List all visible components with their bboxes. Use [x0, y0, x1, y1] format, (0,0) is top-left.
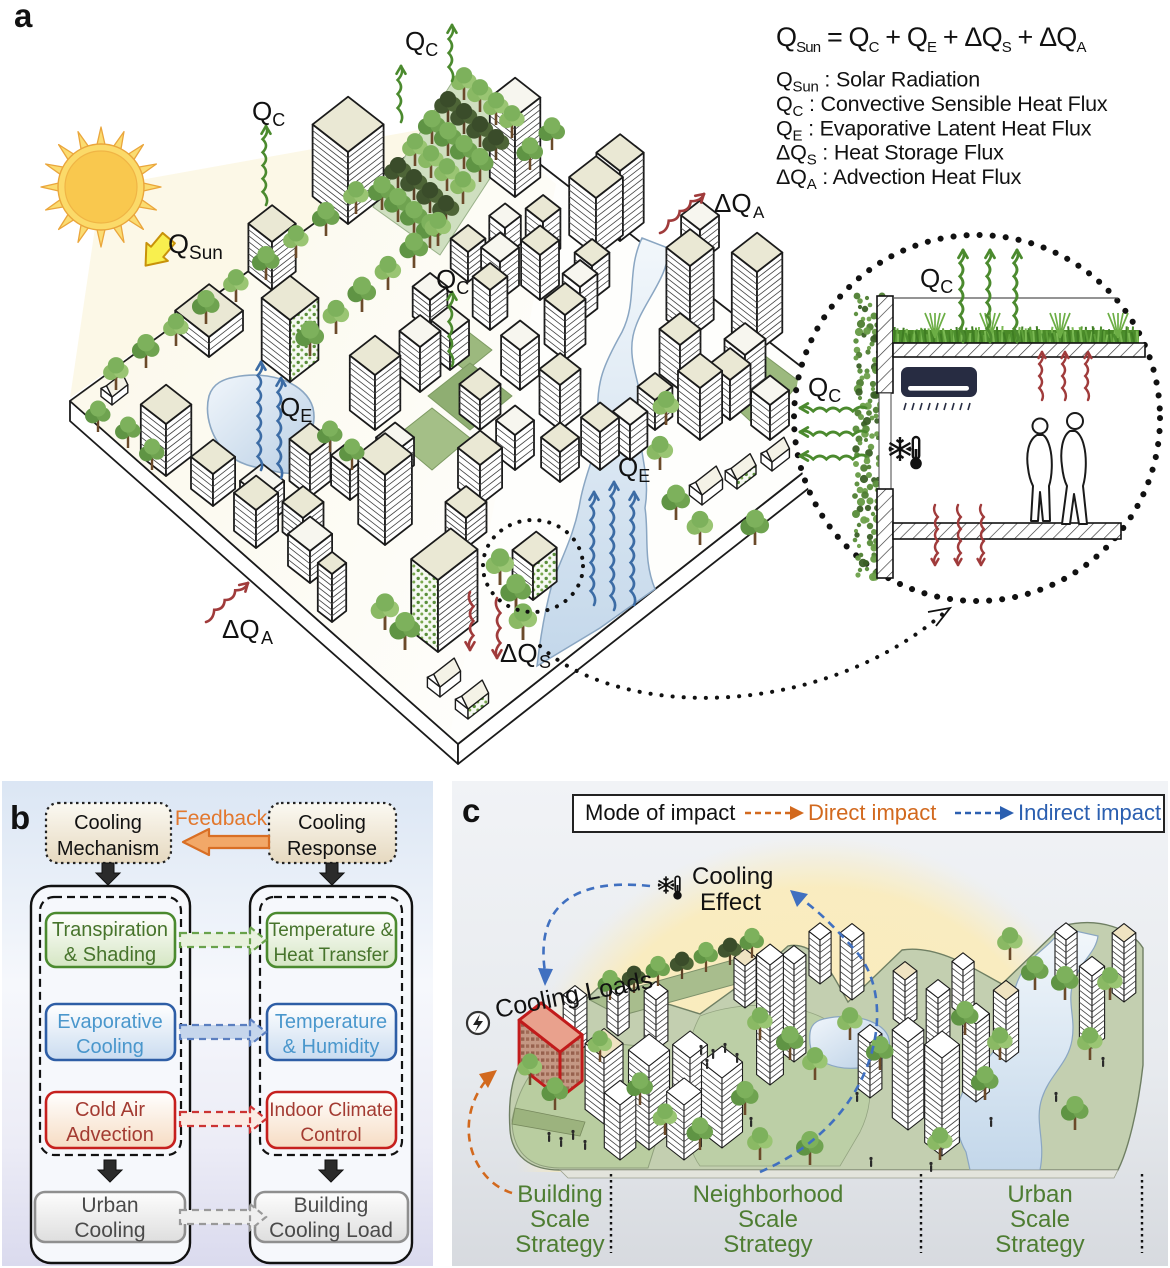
svg-text:Q: Q [618, 452, 638, 482]
svg-text:A: A [261, 628, 273, 648]
svg-text:C: C [272, 110, 285, 130]
svg-text:Response: Response [287, 838, 377, 860]
svg-text:Neighborhood: Neighborhood [693, 1181, 844, 1208]
svg-text:Scale: Scale [738, 1206, 798, 1233]
svg-text:Q: Q [436, 264, 456, 294]
svg-text:ΔQ: ΔQ [500, 638, 538, 668]
svg-text:Sun: Sun [189, 243, 223, 264]
svg-text:Strategy: Strategy [723, 1231, 812, 1258]
svg-text:A: A [753, 203, 765, 222]
svg-text:b: b [10, 799, 30, 836]
svg-text:C: C [940, 277, 953, 297]
svg-text:Q: Q [252, 96, 272, 126]
svg-text:Temperature &: Temperature & [269, 920, 394, 941]
svg-text:Cold Air: Cold Air [75, 1099, 145, 1121]
svg-text:C: C [828, 386, 841, 406]
svg-text:Urban: Urban [1007, 1181, 1072, 1208]
svg-text:Control: Control [300, 1125, 361, 1146]
svg-text:Heat Transfer: Heat Transfer [273, 945, 389, 966]
svg-text:Building: Building [517, 1181, 602, 1208]
svg-text:Building: Building [294, 1194, 369, 1217]
svg-text:Strategy: Strategy [995, 1231, 1084, 1258]
svg-text:Effect: Effect [700, 889, 761, 916]
svg-text:Temperature: Temperature [275, 1011, 387, 1033]
svg-text:Cooling: Cooling [76, 1036, 144, 1058]
svg-text:ΔQ: ΔQ [714, 188, 752, 218]
svg-text:Q: Q [280, 392, 300, 422]
svg-text:Q: Q [405, 26, 425, 56]
svg-text:Evaporative: Evaporative [57, 1011, 163, 1033]
svg-text:Mechanism: Mechanism [57, 838, 159, 860]
svg-text:Scale: Scale [530, 1206, 590, 1233]
svg-text:Feedback: Feedback [175, 807, 268, 830]
svg-text:Transpiration: Transpiration [52, 919, 168, 941]
svg-text:Direct impact: Direct impact [808, 800, 936, 825]
svg-text:Q: Q [808, 372, 828, 402]
svg-text:Strategy: Strategy [515, 1231, 604, 1258]
svg-text:& Humidity: & Humidity [283, 1036, 380, 1058]
svg-text:& Shading: & Shading [64, 944, 156, 966]
svg-text:a: a [14, 0, 33, 34]
svg-text:Cooling: Cooling [74, 1219, 145, 1242]
svg-text:Mode of impact: Mode of impact [585, 800, 735, 825]
svg-text:Cooling: Cooling [298, 812, 366, 834]
svg-text:Q: Q [920, 263, 940, 293]
svg-text:Scale: Scale [1010, 1206, 1070, 1233]
svg-text:Indirect impact: Indirect impact [1018, 800, 1161, 825]
svg-text:E: E [300, 406, 312, 426]
svg-text:Advection: Advection [66, 1124, 154, 1146]
svg-text:c: c [462, 792, 480, 829]
svg-text:C: C [456, 278, 469, 298]
svg-text:Q: Q [168, 229, 189, 259]
svg-text:C: C [425, 40, 438, 60]
svg-text:Cooling Load: Cooling Load [269, 1219, 393, 1242]
svg-text:Indoor Climate: Indoor Climate [269, 1100, 393, 1121]
svg-text:ΔQ: ΔQ [222, 614, 260, 644]
svg-text:Cooling: Cooling [74, 812, 142, 834]
svg-text:E: E [638, 466, 650, 486]
svg-text:Cooling: Cooling [692, 863, 773, 890]
svg-text:Urban: Urban [81, 1194, 138, 1217]
